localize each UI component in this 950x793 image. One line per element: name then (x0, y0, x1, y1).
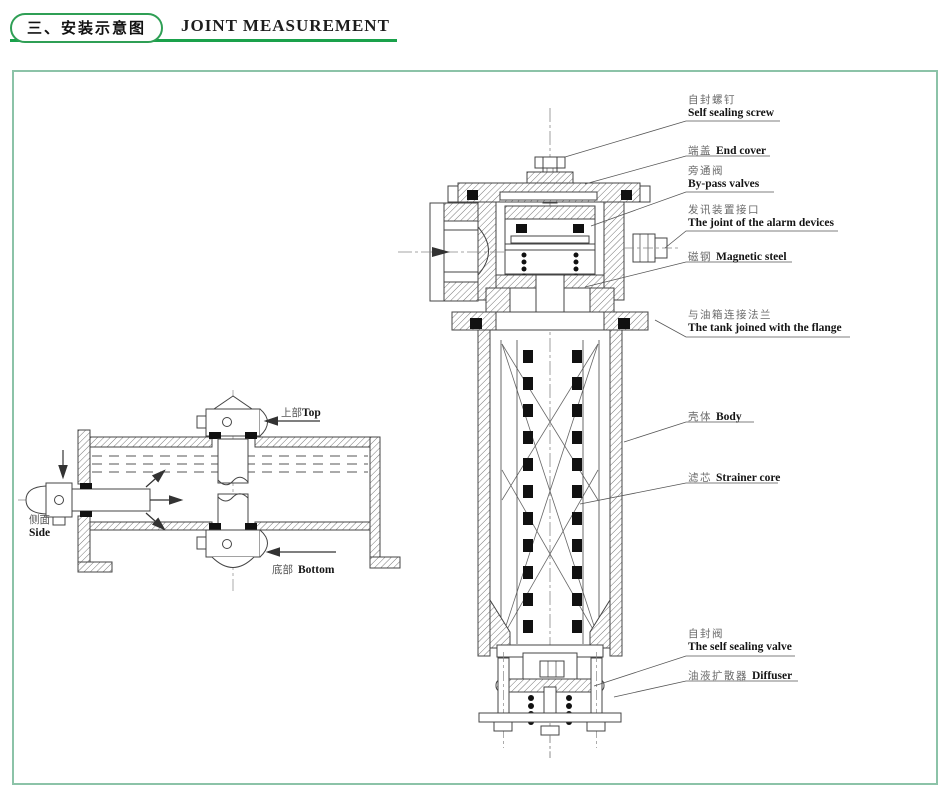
orientation-zh: 上部 (281, 407, 302, 419)
orientation-label-top: 上部Top (281, 403, 321, 421)
part-label-end-cover: 端盖End cover (688, 141, 766, 159)
part-label-magnetic-steel: 磁钢Magnetic steel (688, 247, 787, 265)
part-label-en: Magnetic steel (716, 251, 787, 263)
part-label-zh: 壳体 (688, 411, 712, 423)
part-label-self-sealing-screw: 自封螺钉 Self sealing screw (688, 95, 774, 119)
part-label-zh: 磁钢 (688, 251, 712, 263)
part-label-self-sealing-valve: 自封阀 The self sealing valve (688, 629, 792, 653)
part-label-diffuser: 油液扩散器Diffuser (688, 666, 792, 684)
part-label-en: The self sealing valve (688, 641, 792, 654)
orientation-zh: 侧面 (29, 515, 50, 527)
orientation-label-bottom: 底部Bottom (272, 560, 334, 578)
part-label-en: Diffuser (752, 670, 792, 682)
orientation-en: Top (302, 407, 321, 419)
part-label-tank-flange: 与油箱连接法兰 The tank joined with the flange (688, 310, 842, 334)
part-label-en: By-pass valves (688, 178, 759, 191)
section-title-pill: 三、安装示意图 (10, 13, 163, 43)
part-label-en: Body (716, 411, 742, 423)
part-label-zh: 端盖 (688, 145, 712, 157)
part-label-body: 壳体Body (688, 407, 742, 425)
part-label-zh: 自封阀 (688, 629, 792, 641)
part-label-zh: 与油箱连接法兰 (688, 310, 842, 322)
part-label-en: Strainer core (716, 472, 780, 484)
part-label-en: End cover (716, 145, 766, 157)
section-title-zh: 三、安装示意图 (27, 17, 146, 38)
part-label-zh: 旁通阀 (688, 166, 759, 178)
part-label-zh: 油液扩散器 (688, 670, 748, 682)
orientation-en: Bottom (298, 564, 334, 576)
tank-installation-view (18, 390, 400, 592)
catalog-page: 三、安装示意图 JOINT MEASUREMENT (0, 0, 950, 793)
page-title: JOINT MEASUREMENT (181, 16, 390, 36)
part-label-zh: 发讯装置接口 (688, 205, 834, 217)
part-label-alarm-joint: 发讯装置接口 The joint of the alarm devices (688, 205, 834, 229)
orientation-en: Side (29, 527, 50, 540)
orientation-zh: 底部 (272, 564, 293, 576)
orientation-label-side: 侧面 Side (29, 515, 50, 539)
part-label-zh: 滤芯 (688, 472, 712, 484)
part-label-zh: 自封螺钉 (688, 95, 774, 107)
part-label-bypass-valves: 旁通阀 By-pass valves (688, 166, 759, 190)
part-label-strainer-core: 滤芯Strainer core (688, 468, 780, 486)
part-label-en: The tank joined with the flange (688, 322, 842, 335)
part-label-en: Self sealing screw (688, 107, 774, 120)
part-label-en: The joint of the alarm devices (688, 217, 834, 230)
filter-cross-section (398, 108, 678, 758)
technical-drawing (0, 0, 950, 793)
